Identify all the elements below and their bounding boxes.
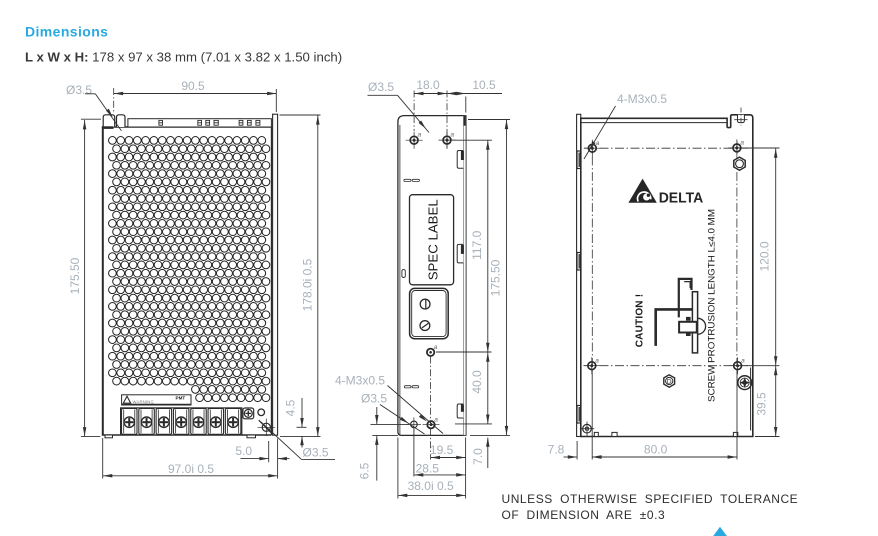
svg-text:a: a: [434, 344, 438, 351]
svg-text:Ø3.5: Ø3.5: [66, 83, 92, 97]
svg-text:18.0: 18.0: [416, 78, 440, 92]
svg-text:7.0: 7.0: [471, 448, 485, 465]
svg-text:CAUTION !: CAUTION !: [634, 294, 645, 347]
svg-text:Ø3.5: Ø3.5: [361, 392, 387, 406]
svg-text:PMT: PMT: [176, 396, 186, 401]
svg-text:80.0: 80.0: [644, 443, 668, 457]
svg-text:4-M3x0.5: 4-M3x0.5: [335, 373, 385, 387]
svg-text:OF DIMENSION ARE ±0.3: OF DIMENSION ARE ±0.3: [502, 508, 666, 522]
svg-text:Dimensions: Dimensions: [25, 24, 108, 40]
svg-text:28.5: 28.5: [416, 462, 440, 476]
svg-text:Ø3.5: Ø3.5: [303, 445, 329, 459]
svg-text:175.50: 175.50: [488, 259, 502, 296]
svg-text:a: a: [434, 416, 438, 423]
svg-text:WARNING: WARNING: [133, 400, 154, 405]
svg-text:a: a: [741, 358, 745, 365]
svg-text:a: a: [451, 132, 455, 139]
svg-text:4-M3x0.5: 4-M3x0.5: [617, 92, 667, 106]
svg-text:40.0: 40.0: [470, 370, 484, 394]
svg-text:120.0: 120.0: [758, 241, 772, 271]
svg-text:a: a: [596, 140, 600, 147]
svg-text:19.5: 19.5: [430, 443, 454, 457]
svg-text:D: D: [667, 379, 672, 386]
svg-text:178.0i 0.5: 178.0i 0.5: [301, 258, 315, 311]
svg-text:a: a: [740, 140, 744, 147]
svg-text:a: a: [418, 132, 422, 139]
svg-text:SPEC LABEL: SPEC LABEL: [426, 199, 441, 280]
svg-text:5.0: 5.0: [235, 444, 252, 458]
svg-text:6.5: 6.5: [358, 462, 372, 479]
svg-text:L x W x H: 178 x 97 x 38 mm (7: L x W x H: 178 x 97 x 38 mm (7.01 x 3.82…: [25, 50, 342, 65]
svg-text:90.5: 90.5: [181, 79, 205, 93]
svg-text:a: a: [595, 358, 599, 365]
svg-text:SCREW PROTRUSION LENGTH L≤4.0: SCREW PROTRUSION LENGTH L≤4.0 MM: [707, 209, 717, 402]
svg-text:97.0i 0.5: 97.0i 0.5: [168, 462, 214, 476]
svg-text:10.5: 10.5: [472, 78, 496, 92]
svg-text:Ø3.5: Ø3.5: [368, 80, 394, 94]
svg-text:39.5: 39.5: [754, 392, 768, 416]
svg-text:117.0: 117.0: [470, 230, 484, 259]
svg-text:38.0i 0.5: 38.0i 0.5: [408, 479, 454, 493]
svg-text:4.5: 4.5: [284, 399, 298, 416]
svg-text:DELTA: DELTA: [659, 190, 704, 207]
svg-text:7.8: 7.8: [548, 443, 565, 457]
svg-text:UNLESS OTHERWISE SPECIFIED TOL: UNLESS OTHERWISE SPECIFIED TOLERANCE: [502, 492, 799, 506]
svg-text:175.50: 175.50: [68, 257, 82, 294]
